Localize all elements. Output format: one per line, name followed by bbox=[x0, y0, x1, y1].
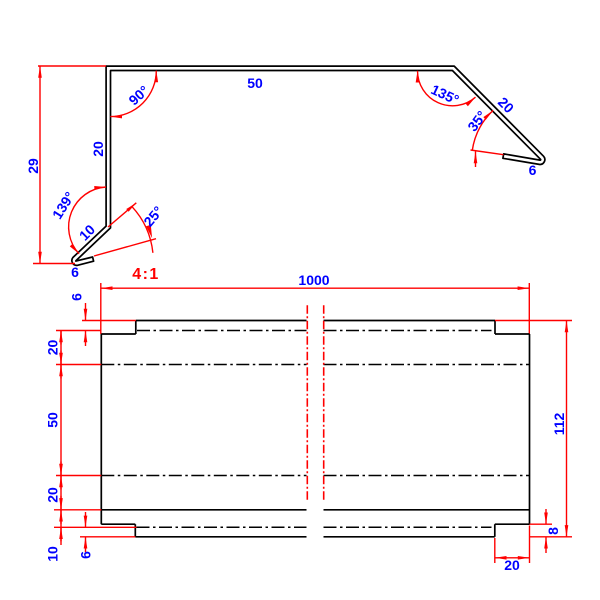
svg-text:35°: 35° bbox=[464, 108, 490, 135]
svg-text:20: 20 bbox=[90, 141, 106, 157]
svg-text:10: 10 bbox=[45, 546, 61, 562]
svg-text:6: 6 bbox=[69, 293, 85, 301]
svg-text:8: 8 bbox=[545, 527, 561, 535]
svg-text:25°: 25° bbox=[140, 203, 166, 230]
svg-text:20: 20 bbox=[45, 487, 61, 503]
svg-text:112: 112 bbox=[551, 412, 567, 435]
svg-text:20: 20 bbox=[504, 557, 520, 573]
svg-text:6: 6 bbox=[78, 551, 94, 559]
svg-text:6: 6 bbox=[529, 162, 537, 178]
svg-text:50: 50 bbox=[45, 412, 61, 428]
svg-text:139°: 139° bbox=[49, 189, 78, 222]
svg-text:1000: 1000 bbox=[298, 272, 329, 288]
svg-text:4:1: 4:1 bbox=[132, 266, 160, 283]
svg-text:6: 6 bbox=[71, 264, 79, 280]
svg-text:90°: 90° bbox=[125, 82, 151, 108]
svg-text:135°: 135° bbox=[429, 81, 462, 108]
svg-text:29: 29 bbox=[25, 158, 41, 174]
svg-text:20: 20 bbox=[45, 340, 61, 356]
svg-text:50: 50 bbox=[247, 75, 263, 91]
